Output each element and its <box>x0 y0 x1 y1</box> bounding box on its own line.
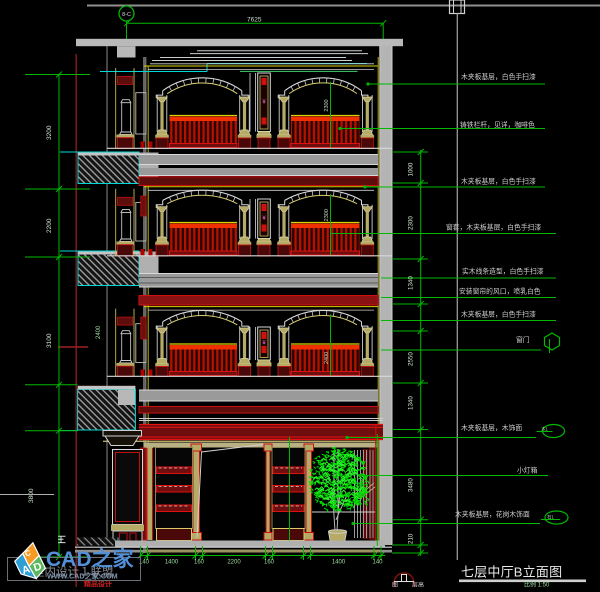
svg-text:1340: 1340 <box>408 276 415 290</box>
svg-text:七层中厅B立面图: 七层中厅B立面图 <box>461 565 562 580</box>
svg-text:1400: 1400 <box>332 560 346 566</box>
svg-text:1400: 1400 <box>165 560 179 566</box>
svg-text:140: 140 <box>372 560 383 566</box>
svg-text:图: 图 <box>392 582 398 587</box>
svg-text:精品设计: 精品设计 <box>84 580 112 588</box>
svg-text:3800: 3800 <box>28 488 35 503</box>
svg-text:2400: 2400 <box>96 325 102 339</box>
svg-text:窗套，木夹板基层，白色手扫漆: 窗套，木夹板基层，白色手扫漆 <box>446 223 541 232</box>
svg-text:木夹板基层，白色手扫漆: 木夹板基层，白色手扫漆 <box>461 310 536 319</box>
svg-text:窗门: 窗门 <box>516 335 530 344</box>
svg-text:2300: 2300 <box>324 99 330 111</box>
svg-text:1340: 1340 <box>408 396 415 410</box>
svg-text:1000: 1000 <box>408 162 415 176</box>
svg-text:210: 210 <box>408 533 415 544</box>
svg-text:8-C: 8-C <box>122 12 131 18</box>
svg-text:3100: 3100 <box>46 333 53 348</box>
svg-text:2200: 2200 <box>227 560 241 566</box>
svg-text:2200: 2200 <box>46 218 53 233</box>
svg-text:小灯箱: 小灯箱 <box>517 466 538 475</box>
svg-text:2400: 2400 <box>324 352 330 364</box>
svg-text:7625: 7625 <box>247 17 262 24</box>
svg-text:160: 160 <box>264 560 275 566</box>
svg-text:160: 160 <box>194 560 205 566</box>
svg-text:木夹板基层，白色手扫漆: 木夹板基层，白色手扫漆 <box>461 177 536 186</box>
svg-text:木1: 木1 <box>541 426 548 433</box>
svg-text:2300: 2300 <box>408 216 415 230</box>
svg-text:2300: 2300 <box>324 209 330 221</box>
svg-text:铸铁栏杆，见详，咖啡色: 铸铁栏杆，见详，咖啡色 <box>460 120 535 129</box>
svg-text:WWW.CAD之家.COM: WWW.CAD之家.COM <box>47 572 118 581</box>
svg-text:2550: 2550 <box>408 352 415 366</box>
svg-text:木夹板基层，花岗木饰面: 木夹板基层，花岗木饰面 <box>455 510 530 519</box>
svg-text:3480: 3480 <box>408 478 415 492</box>
svg-text:3200: 3200 <box>46 125 53 140</box>
svg-text:CAD之家: CAD之家 <box>46 547 134 571</box>
svg-text:木夹板基层，木饰面: 木夹板基层，木饰面 <box>461 423 522 432</box>
svg-text:木夹板基层，白色手扫漆: 木夹板基层，白色手扫漆 <box>461 72 536 81</box>
svg-text:安装窗帘的风口，喷乳白色: 安装窗帘的风口，喷乳白色 <box>459 287 541 296</box>
svg-text:实木线条造型，白色手扫漆: 实木线条造型，白色手扫漆 <box>462 267 544 276</box>
